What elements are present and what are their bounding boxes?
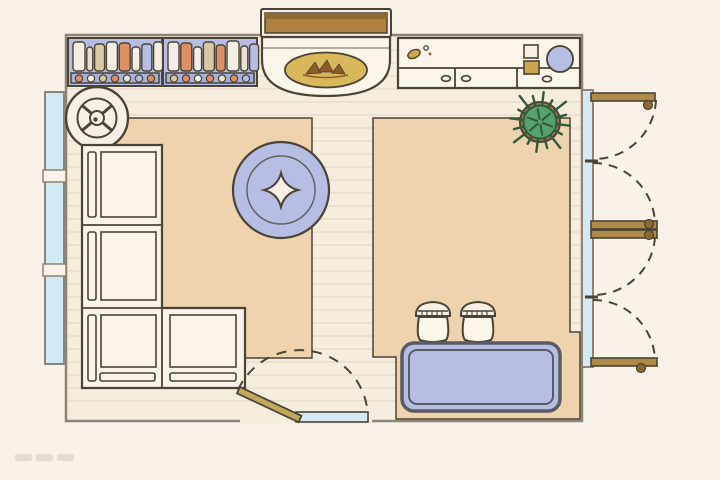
door-threshold bbox=[296, 412, 368, 422]
left-window bbox=[43, 92, 66, 364]
door-knob bbox=[645, 220, 654, 229]
stool-2 bbox=[461, 302, 495, 342]
door-leaf bbox=[591, 358, 657, 366]
door-knob bbox=[644, 101, 653, 110]
sink-basin bbox=[547, 46, 573, 72]
countertop-board bbox=[524, 45, 538, 58]
window-mullion bbox=[43, 264, 66, 276]
bench bbox=[402, 343, 560, 411]
countertop-item bbox=[424, 46, 428, 50]
floor-plan-canvas bbox=[0, 0, 720, 480]
door-knob bbox=[637, 364, 646, 373]
countertop-board bbox=[524, 61, 539, 74]
stool-1 bbox=[416, 302, 450, 342]
door-knob bbox=[645, 231, 654, 240]
door-leaf bbox=[591, 93, 655, 101]
drawer-handle bbox=[462, 76, 471, 82]
fireplace bbox=[261, 9, 391, 96]
watermark bbox=[15, 452, 74, 462]
floor-plan-stage bbox=[0, 0, 720, 480]
drawer-handle bbox=[543, 76, 552, 82]
round-rug bbox=[233, 142, 329, 238]
bookshelf bbox=[68, 38, 259, 86]
drawer-handle bbox=[442, 76, 451, 82]
round-side-table bbox=[66, 87, 128, 149]
countertop-item bbox=[429, 53, 432, 56]
window-mullion bbox=[43, 170, 66, 182]
counter-cabinet bbox=[398, 38, 580, 88]
